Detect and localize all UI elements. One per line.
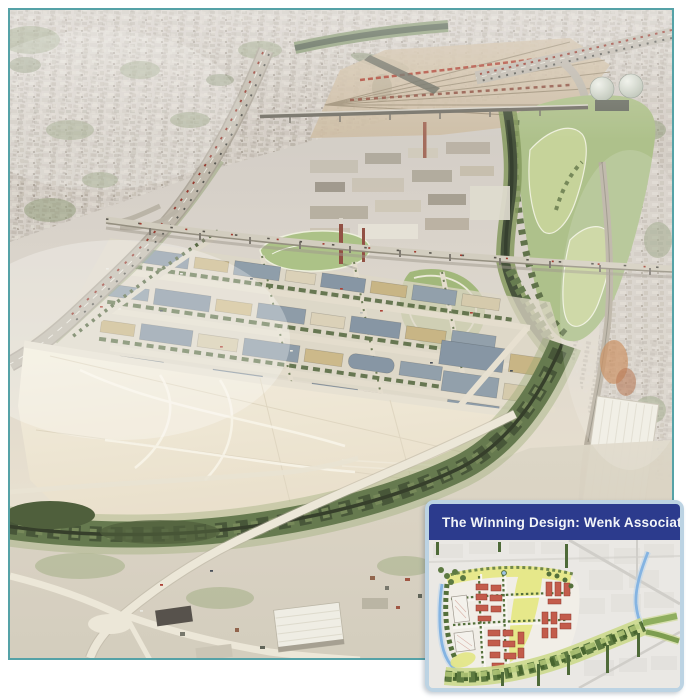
inset-title-bar: The Winning Design: Wenk Associates bbox=[429, 504, 680, 540]
figure-canvas: The Winning Design: Wenk Associates bbox=[0, 0, 686, 700]
site-plan-art bbox=[429, 540, 680, 688]
winning-design-inset: The Winning Design: Wenk Associates bbox=[425, 500, 684, 692]
inset-title: The Winning Design: Wenk Associates bbox=[442, 515, 680, 530]
plan-plaza-pond bbox=[502, 571, 507, 576]
site-plan-panel bbox=[429, 540, 680, 688]
